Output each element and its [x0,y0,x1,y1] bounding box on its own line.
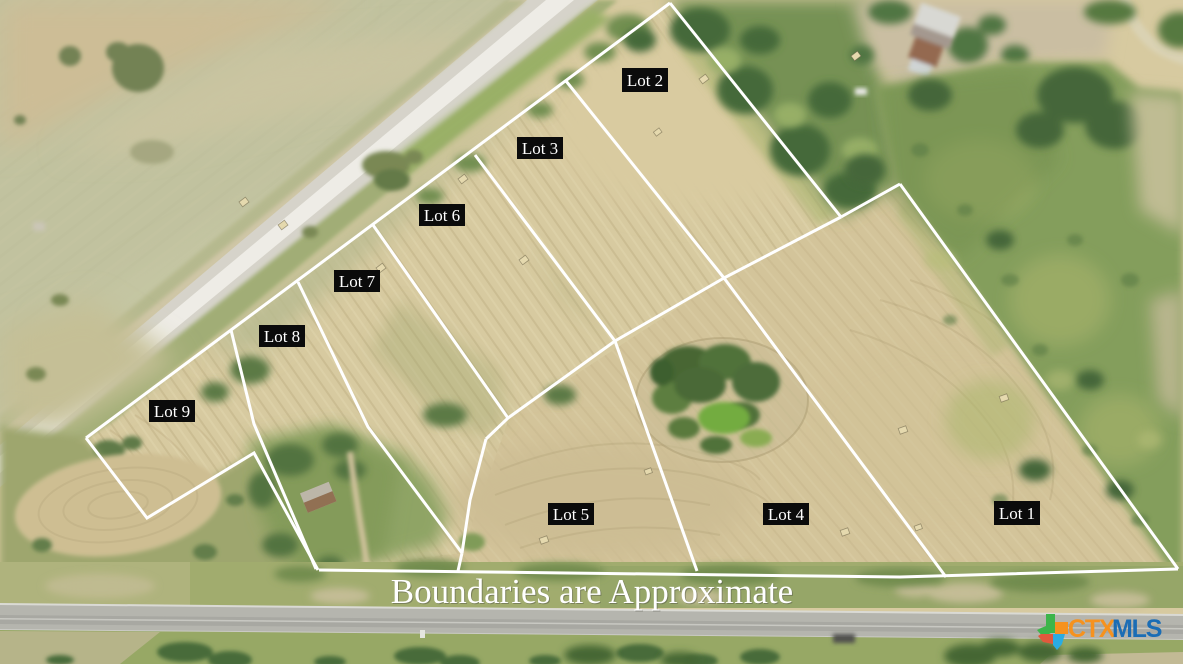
svg-text:Boundaries are Approximate: Boundaries are Approximate [391,572,793,611]
svg-text:CTX: CTX [1068,615,1116,643]
svg-text:MLS: MLS [1112,615,1162,643]
